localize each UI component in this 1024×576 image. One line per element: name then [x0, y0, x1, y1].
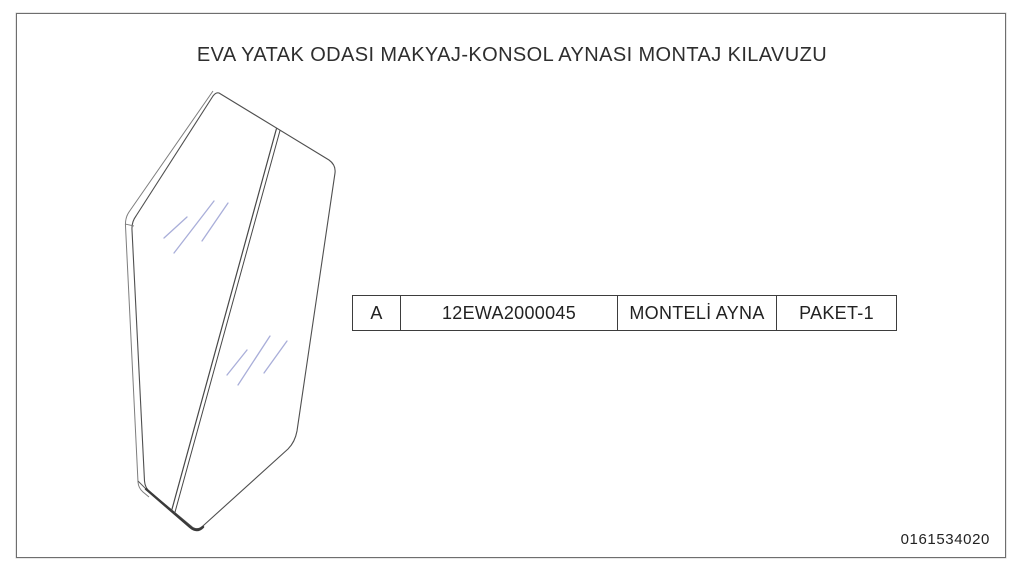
document-number: 0161534020 — [901, 531, 990, 548]
parts-table: A 12EWA2000045 MONTELİ AYNA PAKET-1 — [352, 295, 897, 331]
parts-table-cell-item-letter: A — [353, 296, 400, 330]
instruction-sheet-page: EVA YATAK ODASI MAKYAJ-KONSOL AYNASI MON… — [0, 0, 1024, 576]
parts-table-cell-description: MONTELİ AYNA — [617, 296, 776, 330]
page-title: EVA YATAK ODASI MAKYAJ-KONSOL AYNASI MON… — [0, 44, 1024, 67]
page-border — [16, 13, 1006, 558]
parts-table-cell-part-number: 12EWA2000045 — [400, 296, 617, 330]
parts-table-cell-package: PAKET-1 — [776, 296, 896, 330]
